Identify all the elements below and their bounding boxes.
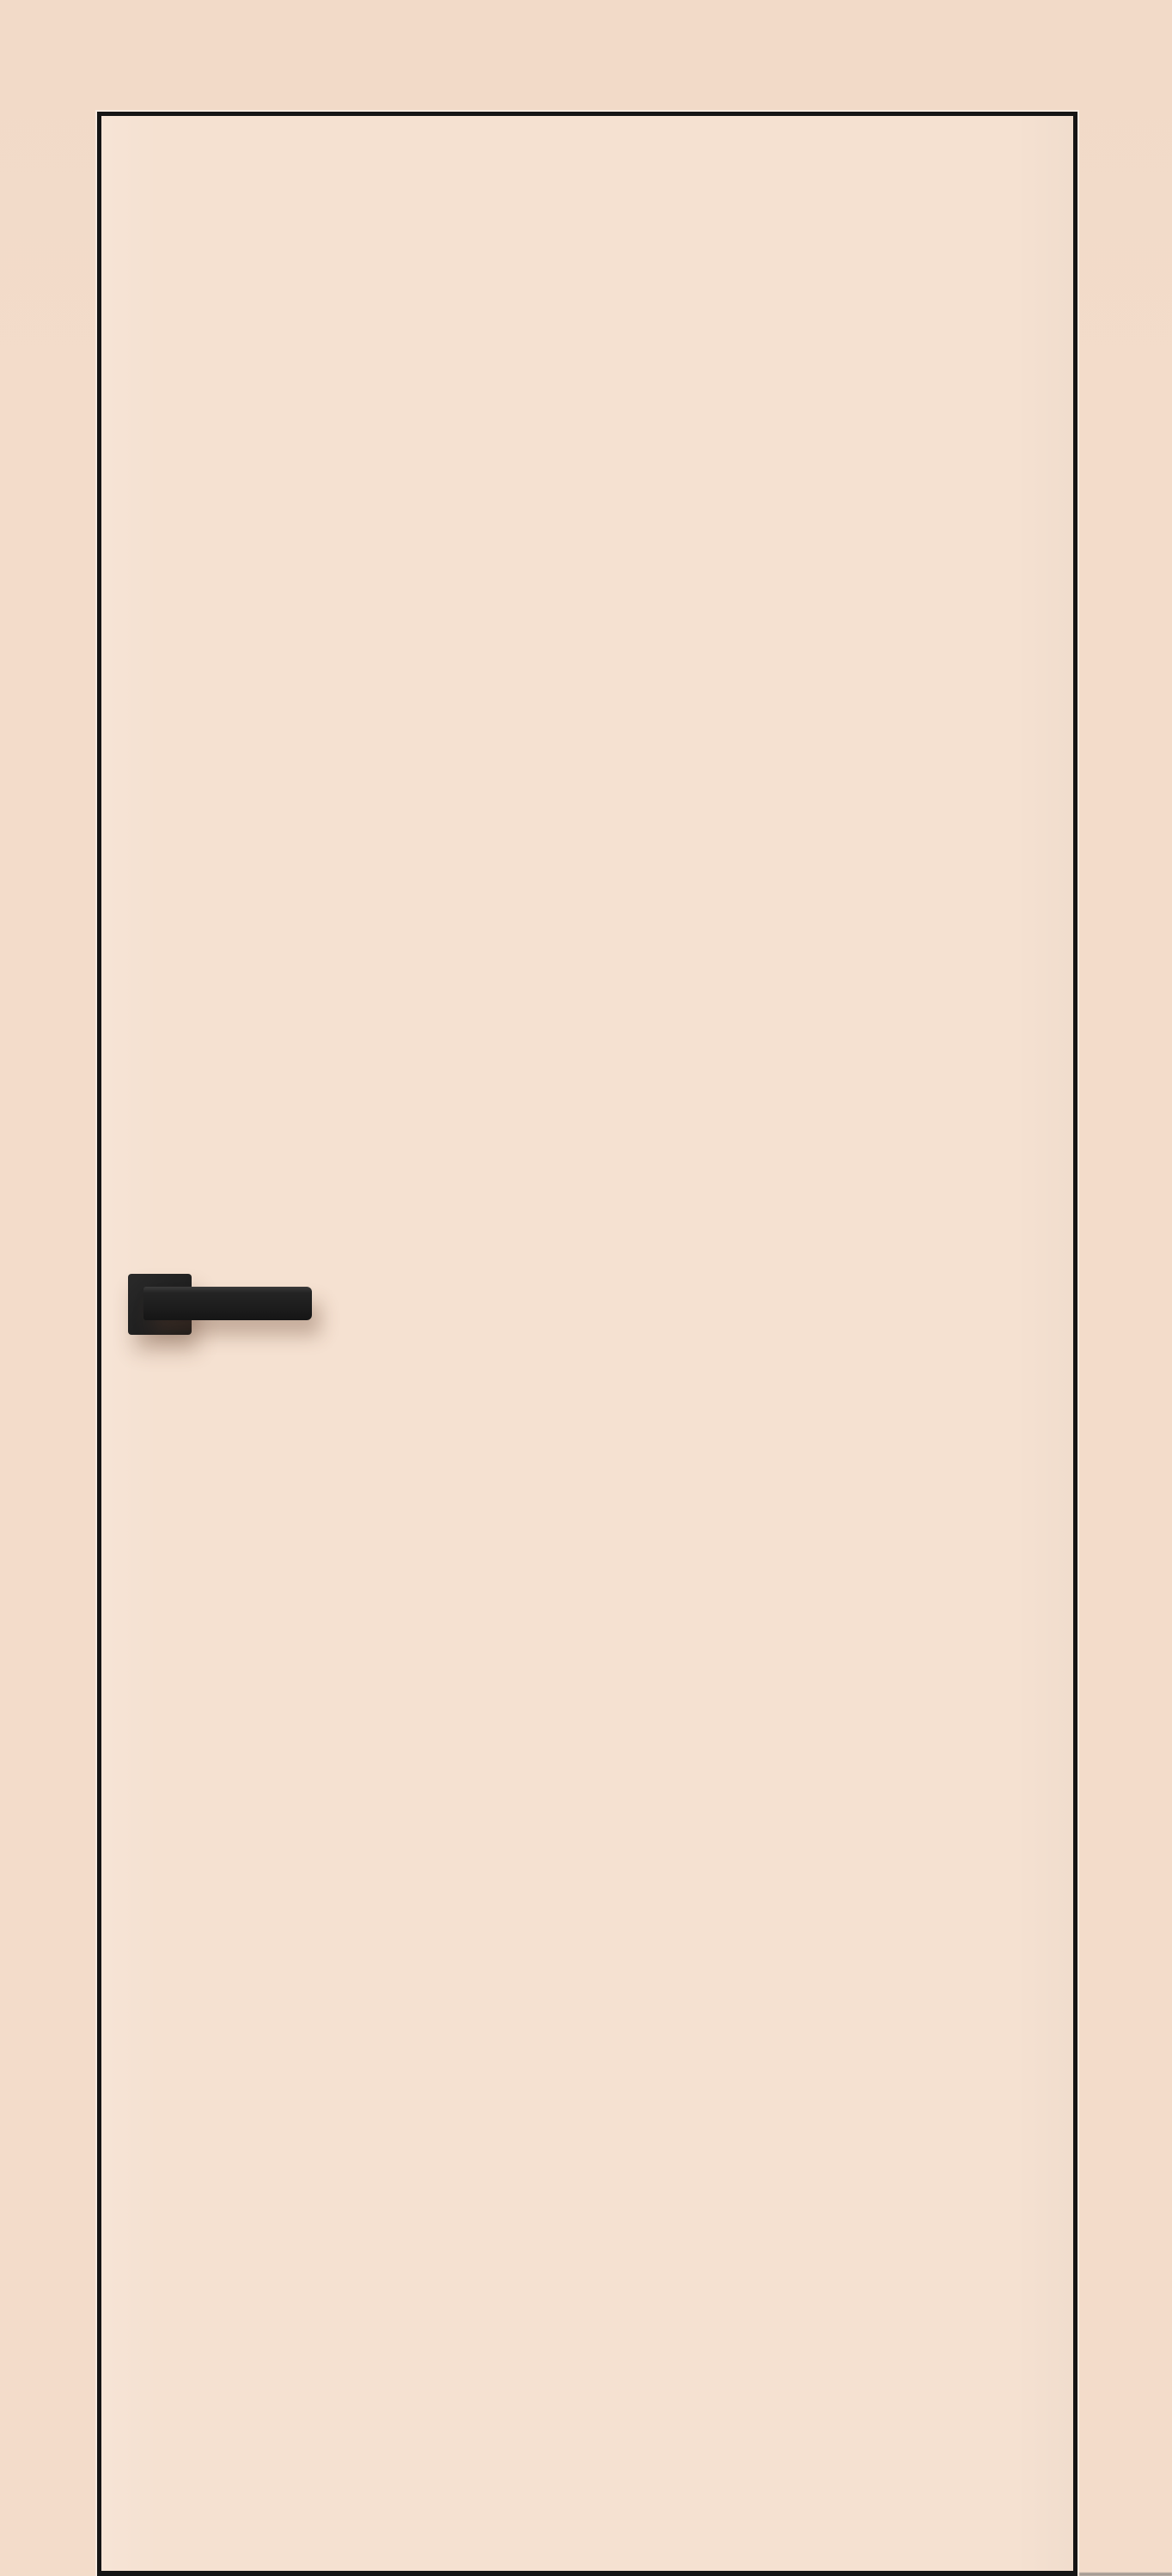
product-photo-stage	[0, 0, 1172, 2576]
door-handle	[128, 1274, 334, 1368]
floor-shadow	[1079, 2573, 1172, 2576]
handle-lever	[143, 1287, 312, 1320]
